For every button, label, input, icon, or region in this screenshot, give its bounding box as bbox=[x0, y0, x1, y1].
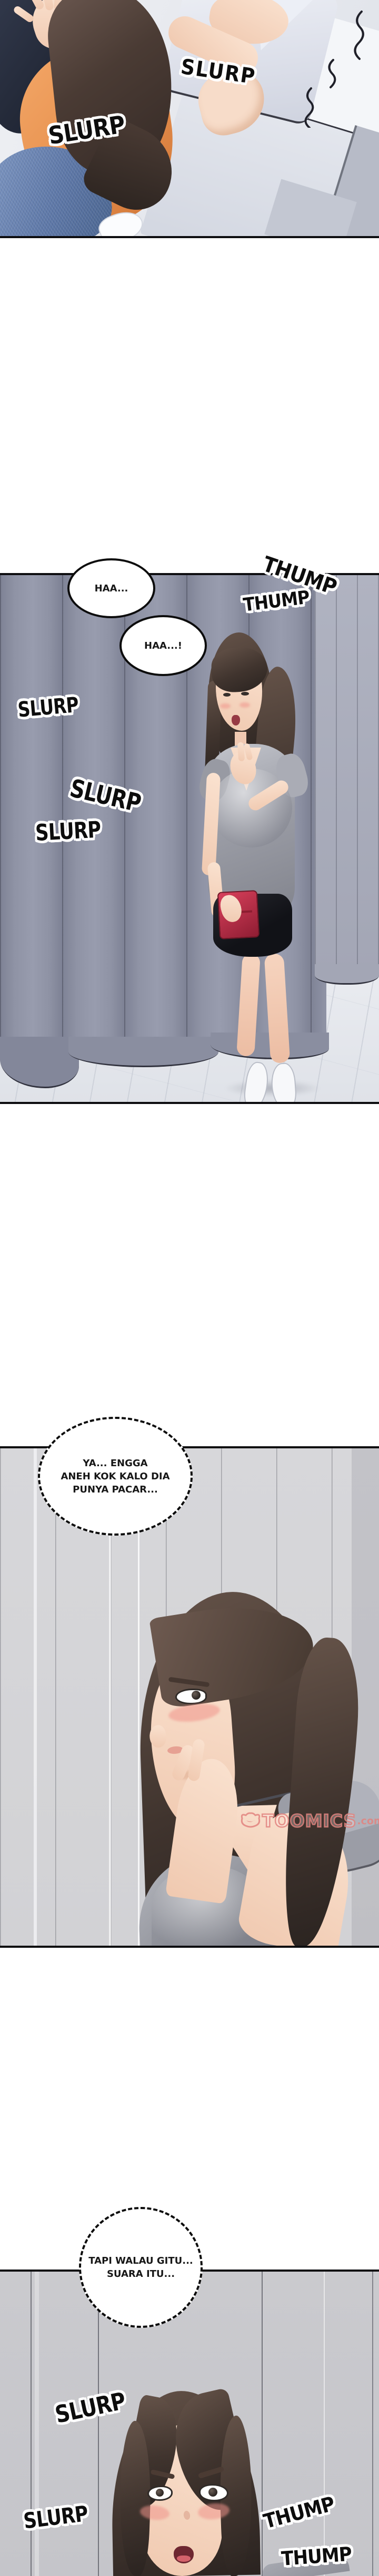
shaking-squiggle-lines bbox=[303, 9, 376, 128]
thought-text: TAPI WALAU GITU... SUARA ITU... bbox=[88, 2254, 193, 2281]
toomics-watermark: TOOMICS .com bbox=[240, 1811, 379, 1831]
iris bbox=[156, 2489, 164, 2497]
panel-border bbox=[0, 1946, 379, 1948]
plank-line bbox=[324, 2271, 325, 2576]
curtain-hem bbox=[68, 1037, 218, 1067]
panel-thought-closeup bbox=[0, 1447, 379, 1948]
curtain-right-hem bbox=[315, 964, 379, 985]
panel-border bbox=[0, 1102, 379, 1104]
panel-border bbox=[0, 236, 379, 238]
speech-text: HAA... bbox=[95, 583, 128, 594]
blush bbox=[240, 702, 250, 708]
woman-eye bbox=[241, 692, 249, 696]
plank-line bbox=[262, 2271, 263, 2576]
eye bbox=[147, 2486, 173, 2501]
thought-bubble: TAPI WALAU GITU... SUARA ITU... bbox=[79, 2207, 203, 2328]
open-mouth bbox=[174, 2546, 194, 2563]
iris bbox=[192, 1691, 201, 1700]
thought-bubble: YA... ENGGA ANEH KOK KALO DIA PUNYA PACA… bbox=[38, 1417, 193, 1536]
watermark-suffix: .com bbox=[357, 1815, 379, 1827]
speech-bubble: HAA... bbox=[67, 558, 155, 618]
blush bbox=[220, 703, 231, 709]
speech-text: HAA...! bbox=[144, 640, 182, 651]
speech-bubble: HAA...! bbox=[119, 615, 207, 676]
wall-highlight bbox=[34, 1447, 37, 1948]
woman-eye bbox=[223, 693, 231, 697]
toomics-devil-icon bbox=[240, 1812, 261, 1831]
webtoon-page: SLURP SLURP THUMP THUMP SLURP SLURP SLUR… bbox=[0, 0, 379, 2576]
panel-bed-scene bbox=[0, 0, 379, 238]
plank-line bbox=[372, 2271, 373, 2576]
woman-open-mouth bbox=[232, 715, 240, 725]
tongue bbox=[177, 2555, 191, 2562]
eye bbox=[199, 2484, 228, 2501]
sfx-slurp: SLURP bbox=[35, 817, 102, 846]
thought-text: YA... ENGGA ANEH KOK KALO DIA PUNYA PACA… bbox=[61, 1457, 169, 1496]
curtain-right-band bbox=[315, 574, 379, 974]
plank-line bbox=[98, 2271, 99, 2576]
eye bbox=[175, 1689, 207, 1704]
iris bbox=[208, 2488, 217, 2497]
watermark-brand: TOOMICS bbox=[262, 1811, 356, 1831]
